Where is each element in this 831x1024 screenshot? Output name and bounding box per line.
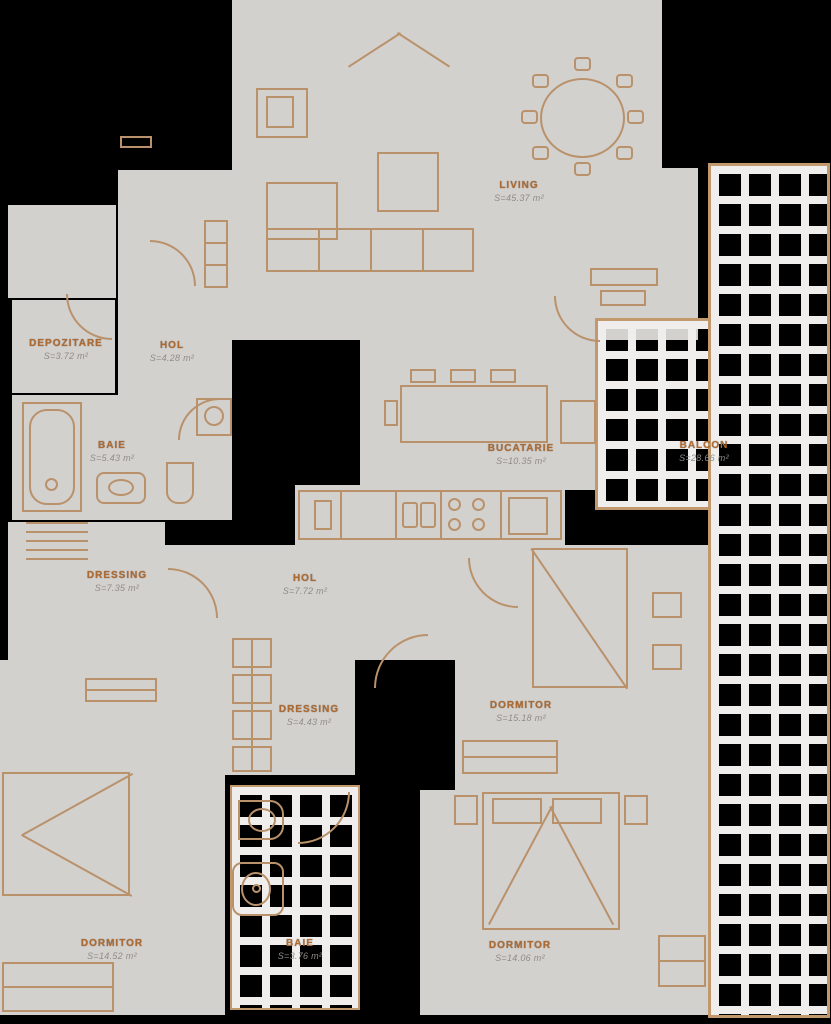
nightstand <box>652 644 682 670</box>
room-name: BAIE <box>250 938 350 949</box>
room-label-baie-bottom: BAIE S=3.76 m² <box>250 938 350 961</box>
sink-basin <box>402 502 418 528</box>
dining-chair <box>574 162 591 176</box>
dining-chair <box>616 74 633 88</box>
room-name: HOL <box>122 340 222 351</box>
room-label-dormitor-mid: DORMITOR S=15.18 m² <box>461 700 581 723</box>
room-name: DORMITOR <box>461 700 581 711</box>
bathtub-drain <box>45 478 58 491</box>
stove-burner <box>472 518 485 531</box>
room-name: DEPOZITARE <box>15 338 117 349</box>
console-shelf <box>590 268 658 286</box>
floor-entry <box>8 205 116 298</box>
room-label-hol-top: HOL S=4.28 m² <box>122 340 222 363</box>
kitchen-table <box>400 385 548 443</box>
room-label-baie-top: BAIE S=5.43 m² <box>62 440 162 463</box>
room-label-depozitare: DEPOZITARE S=3.72 m² <box>15 338 117 361</box>
counter-cabinet <box>314 500 332 530</box>
fridge <box>560 400 596 444</box>
room-label-dressing-left: DRESSING S=7.35 m² <box>57 570 177 593</box>
coffee-table <box>377 152 439 212</box>
dresser-line <box>464 756 556 758</box>
radiator <box>204 220 228 288</box>
dining-chair <box>521 110 538 124</box>
room-area: S=45.37 m² <box>459 193 579 203</box>
dresser-line <box>660 960 704 962</box>
balcony-tiles-main <box>708 163 830 1018</box>
closet-line <box>4 986 112 988</box>
toilet-bowl <box>248 808 276 832</box>
room-area: S=14.06 m² <box>460 953 580 963</box>
tv-unit-inner <box>266 96 294 128</box>
room-name: DRESSING <box>249 704 369 715</box>
bathroom-sink-bowl <box>108 479 134 496</box>
room-name: DORMITOR <box>52 938 172 949</box>
nightstand <box>454 795 478 825</box>
sofa-divider <box>318 229 320 271</box>
balcony-tiles-upper <box>595 318 711 510</box>
room-label-bucatarie: BUCATARIE S=10.35 m² <box>461 443 581 466</box>
pillow <box>552 798 602 824</box>
dining-table <box>540 78 625 158</box>
sofa-divider <box>370 229 372 271</box>
kitchen-chair <box>410 369 436 383</box>
counter-divider <box>440 492 442 538</box>
stove-burner <box>448 518 461 531</box>
room-name: LIVING <box>459 180 579 191</box>
stove-burner <box>448 498 461 511</box>
counter-divider <box>500 492 502 538</box>
room-label-dressing-center: DRESSING S=4.43 m² <box>249 704 369 727</box>
pillow <box>492 798 542 824</box>
radiator-line <box>206 242 226 244</box>
room-name: BUCATARIE <box>461 443 581 454</box>
room-label-dormitor-br: DORMITOR S=14.06 m² <box>460 940 580 963</box>
kitchen-chair <box>450 369 476 383</box>
room-name: DORMITOR <box>460 940 580 951</box>
room-name: DRESSING <box>57 570 177 581</box>
room-label-balcon: BALCON S=28.66 m² <box>644 440 764 463</box>
dishwasher <box>508 497 548 535</box>
kitchen-chair <box>384 400 398 426</box>
sofa-divider <box>422 229 424 271</box>
room-area: S=4.28 m² <box>122 353 222 363</box>
nightstand <box>624 795 648 825</box>
room-area: S=3.76 m² <box>250 951 350 961</box>
vent-fan-icon <box>120 136 152 148</box>
floor-plan: LIVING S=45.37 m² DEPOZITARE S=3.72 m² H… <box>0 0 831 1024</box>
nightstand <box>652 592 682 618</box>
dining-chair <box>532 146 549 160</box>
counter-divider <box>340 492 342 538</box>
wardrobe-line <box>87 689 155 691</box>
stove-burner <box>472 498 485 511</box>
room-label-living: LIVING S=45.37 m² <box>459 180 579 203</box>
room-name: BALCON <box>644 440 764 451</box>
room-name: BAIE <box>62 440 162 451</box>
sink-basin <box>420 502 436 528</box>
room-area: S=5.43 m² <box>62 453 162 463</box>
dining-chair <box>616 146 633 160</box>
room-area: S=3.72 m² <box>15 351 117 361</box>
toilet <box>166 462 194 504</box>
radiator-line <box>206 264 226 266</box>
room-area: S=10.35 m² <box>461 456 581 466</box>
dining-chair <box>574 57 591 71</box>
console-shelf-lower <box>600 290 646 306</box>
dining-chair <box>627 110 644 124</box>
room-area: S=7.72 m² <box>255 586 355 596</box>
shelving-hatch <box>26 522 88 564</box>
room-area: S=15.18 m² <box>461 713 581 723</box>
room-area: S=7.35 m² <box>57 583 177 593</box>
room-area: S=28.66 m² <box>644 453 764 463</box>
room-area: S=14.52 m² <box>52 951 172 961</box>
kitchen-chair <box>490 369 516 383</box>
counter-divider <box>395 492 397 538</box>
dining-chair <box>532 74 549 88</box>
room-label-hol-mid: HOL S=7.72 m² <box>255 573 355 596</box>
sink-drain <box>252 884 261 893</box>
room-area: S=4.43 m² <box>249 717 369 727</box>
room-label-dormitor-bl: DORMITOR S=14.52 m² <box>52 938 172 961</box>
room-name: HOL <box>255 573 355 584</box>
